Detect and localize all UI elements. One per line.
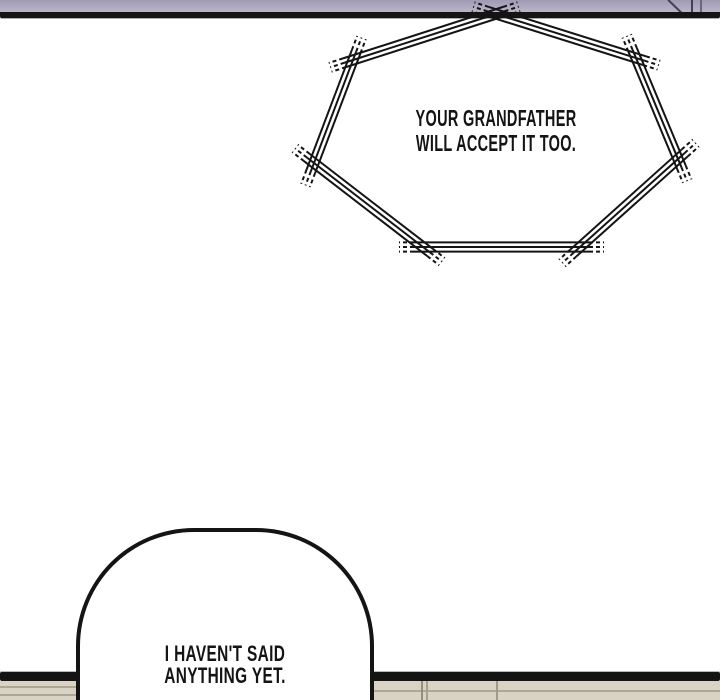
speech-line: YOUR GRANDFATHER [402, 106, 591, 131]
speech-text-rounded: I HAVEN'T SAID ANYTHING YET. [120, 643, 330, 687]
comic-panel: YOUR GRANDFATHER WILL ACCEPT IT TOO. I H… [0, 0, 720, 700]
speech-line: ANYTHING YET. [120, 665, 330, 687]
speech-line: I HAVEN'T SAID [120, 643, 330, 665]
speech-text-jagged: YOUR GRANDFATHER WILL ACCEPT IT TOO. [402, 106, 591, 156]
speech-line: WILL ACCEPT IT TOO. [402, 131, 591, 156]
